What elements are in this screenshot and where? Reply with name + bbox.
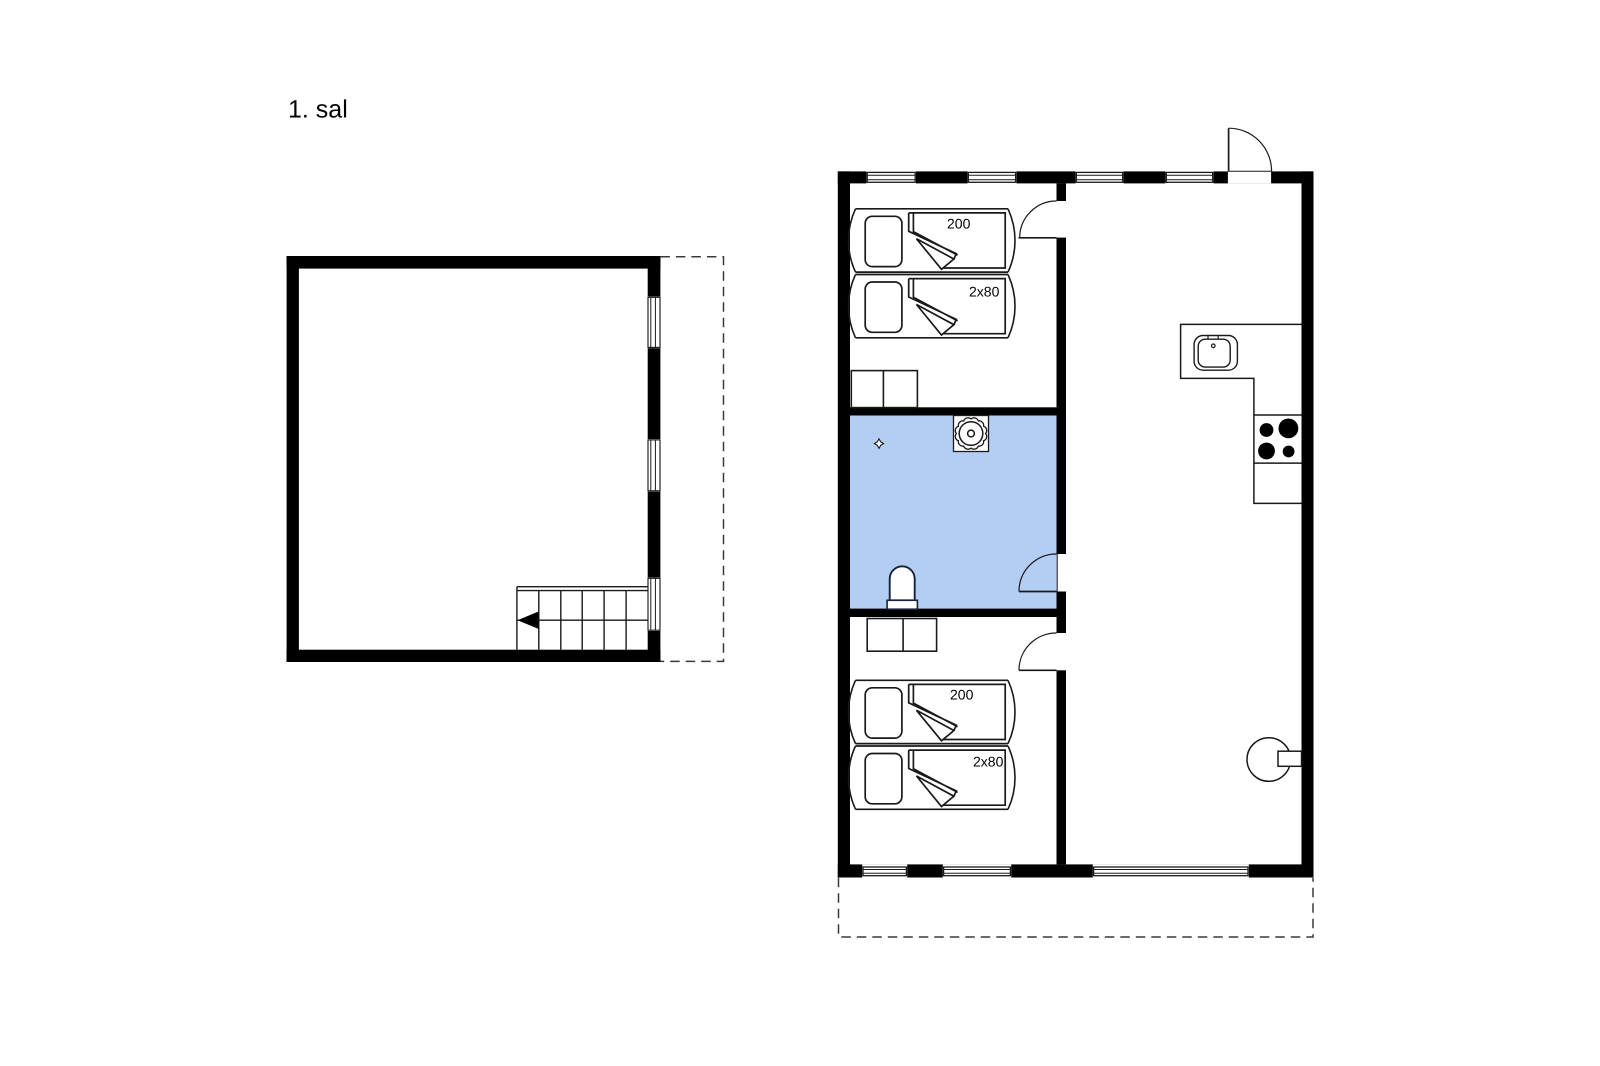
svg-text:2x80: 2x80 (973, 754, 1004, 770)
svg-text:2x80: 2x80 (969, 284, 1000, 300)
svg-text:200: 200 (947, 216, 971, 232)
svg-text:1. sal: 1. sal (288, 96, 348, 124)
svg-text:200: 200 (950, 687, 974, 703)
